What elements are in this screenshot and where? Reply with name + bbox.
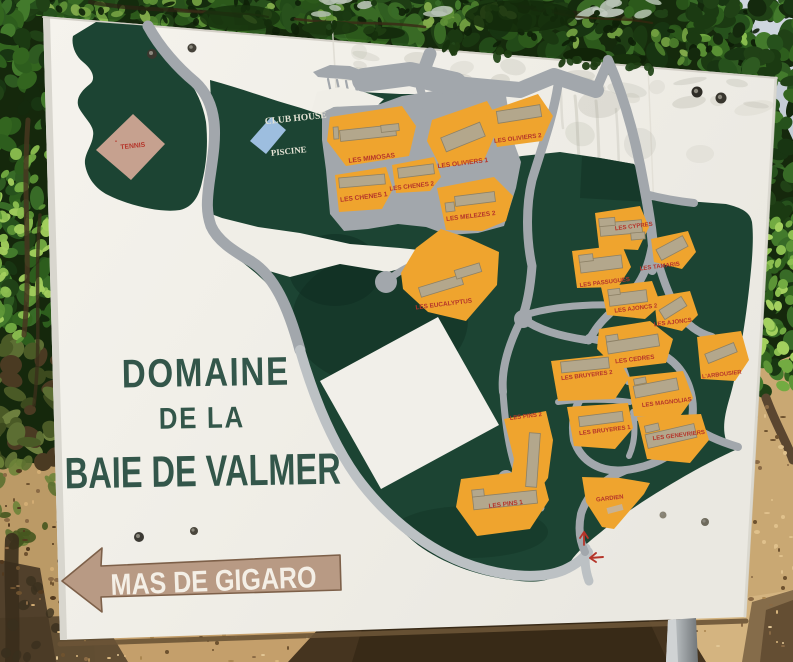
svg-text:BAIE DE VALMER: BAIE DE VALMER [64, 445, 341, 499]
svg-text:•: • [115, 139, 117, 145]
svg-text:DE LA: DE LA [159, 401, 246, 435]
svg-text:DOMAINE: DOMAINE [121, 350, 290, 397]
